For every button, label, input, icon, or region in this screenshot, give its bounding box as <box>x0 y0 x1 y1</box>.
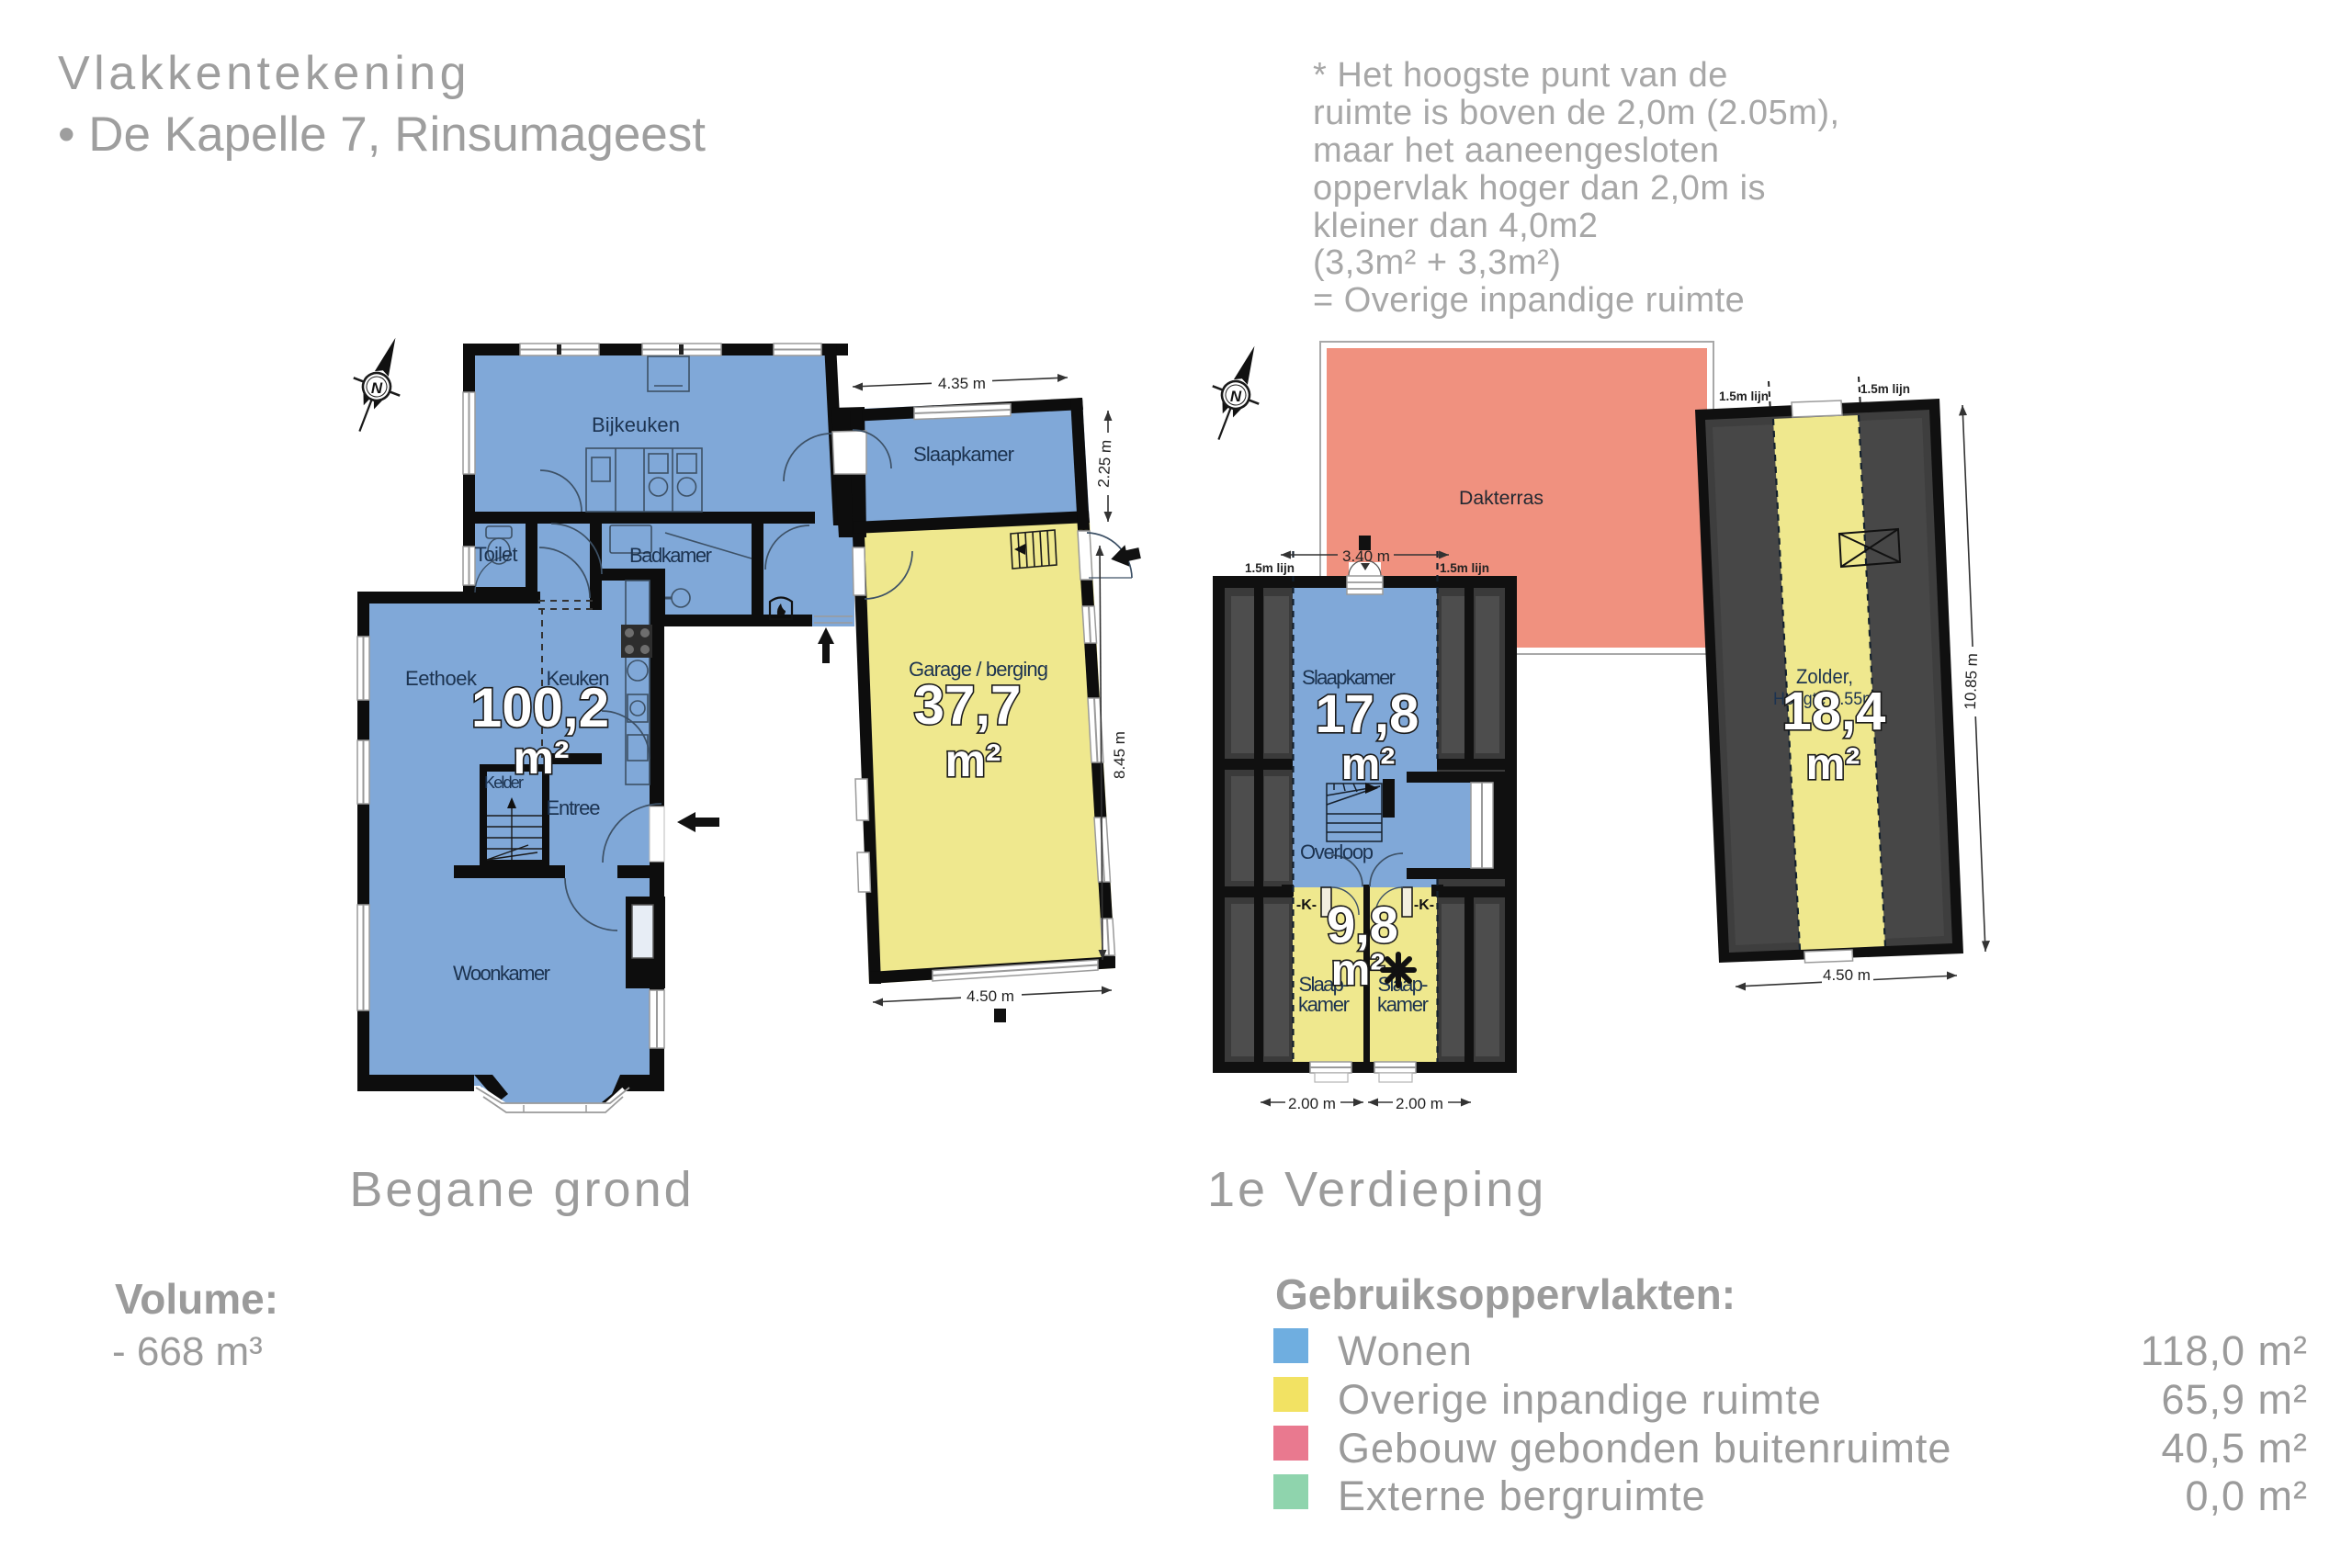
svg-text:Slaapkamer: Slaapkamer <box>913 443 1014 466</box>
svg-text:Overloop: Overloop <box>1300 840 1374 863</box>
svg-text:ruimte is boven de 2,0m (2.05m: ruimte is boven de 2,0m (2.05m), <box>1313 94 1840 132</box>
svg-text:Begane grond: Begane grond <box>349 1162 694 1217</box>
svg-text:9,8: 9,8 <box>1327 896 1398 953</box>
svg-text:Vlakkentekening: Vlakkentekening <box>58 47 470 100</box>
svg-text:-K-: -K- <box>1414 897 1434 913</box>
svg-text:Gebouw gebonden buitenruimte: Gebouw gebonden buitenruimte <box>1338 1425 1951 1472</box>
svg-text:40,5 m²: 40,5 m² <box>2161 1425 2308 1472</box>
svg-text:1.5m lijn: 1.5m lijn <box>1860 382 1910 396</box>
svg-text:Externe bergruimte: Externe bergruimte <box>1338 1472 1706 1519</box>
svg-text:65,9 m²: 65,9 m² <box>2161 1376 2308 1423</box>
svg-text:-K-: -K- <box>1296 897 1317 913</box>
svg-text:Overige inpandige ruimte: Overige inpandige ruimte <box>1338 1376 1822 1423</box>
svg-text:17,8: 17,8 <box>1316 684 1419 744</box>
svg-text:8.45 m: 8.45 m <box>1111 731 1128 779</box>
svg-text:100,2: 100,2 <box>471 677 609 739</box>
svg-text:oppervlak hoger dan 2,0m is: oppervlak hoger dan 2,0m is <box>1313 169 1766 208</box>
svg-text:m²: m² <box>1341 740 1396 789</box>
svg-text:Volume:: Volume: <box>115 1275 278 1323</box>
svg-text:Eethoek: Eethoek <box>405 667 478 690</box>
svg-text:maar het aaneengesloten: maar het aaneengesloten <box>1313 131 1720 170</box>
svg-text:Entree: Entree <box>547 796 601 819</box>
svg-text:37,7: 37,7 <box>914 674 1022 736</box>
svg-text:- 668 m³: - 668 m³ <box>112 1329 263 1374</box>
svg-text:kamer: kamer <box>1298 993 1350 1016</box>
svg-text:N: N <box>371 379 383 397</box>
svg-text:m²: m² <box>1331 946 1385 995</box>
svg-text:4.50 m: 4.50 m <box>967 987 1014 1005</box>
svg-text:2.00 m: 2.00 m <box>1396 1095 1443 1112</box>
svg-text:• De Kapelle 7, Rinsumageest: • De Kapelle 7, Rinsumageest <box>58 107 706 162</box>
svg-text:118,0 m²: 118,0 m² <box>2141 1327 2308 1374</box>
svg-text:2.00 m: 2.00 m <box>1288 1095 1336 1112</box>
svg-text:m²: m² <box>513 732 569 784</box>
svg-text:10.85 m: 10.85 m <box>1962 653 1981 710</box>
svg-text:1.5m lijn: 1.5m lijn <box>1719 389 1769 403</box>
svg-text:Badkamer: Badkamer <box>629 544 712 567</box>
svg-text:Toilet: Toilet <box>475 543 518 566</box>
svg-text:1.5m lijn: 1.5m lijn <box>1245 561 1295 575</box>
svg-text:1e Verdieping: 1e Verdieping <box>1207 1162 1546 1217</box>
svg-text:4.50 m: 4.50 m <box>1823 966 1871 984</box>
svg-text:(3,3m² + 3,3m²): (3,3m² + 3,3m²) <box>1313 243 1561 282</box>
svg-text:kleiner dan 4,0m2: kleiner dan 4,0m2 <box>1313 207 1599 245</box>
svg-text:= Overige inpandige ruimte: = Overige inpandige ruimte <box>1313 281 1745 320</box>
svg-text:4.35 m: 4.35 m <box>938 375 986 392</box>
svg-text:18,4: 18,4 <box>1782 682 1886 741</box>
svg-text:Bijkeuken: Bijkeuken <box>592 413 680 436</box>
svg-text:* Het hoogste punt van de: * Het hoogste punt van de <box>1313 56 1728 95</box>
svg-text:m²: m² <box>1806 740 1860 789</box>
svg-text:Woonkamer: Woonkamer <box>453 962 550 985</box>
svg-text:3.40 m: 3.40 m <box>1342 547 1390 565</box>
svg-text:2.25 m: 2.25 m <box>1095 439 1115 488</box>
svg-text:0,0 m²: 0,0 m² <box>2185 1472 2308 1519</box>
svg-text:m²: m² <box>944 735 1001 786</box>
svg-text:Dakterras: Dakterras <box>1459 488 1543 509</box>
svg-text:Gebruiksoppervlakten:: Gebruiksoppervlakten: <box>1275 1270 1736 1318</box>
svg-text:kamer: kamer <box>1377 993 1429 1016</box>
svg-text:Wonen: Wonen <box>1338 1327 1473 1374</box>
svg-text:N: N <box>1230 388 1242 405</box>
svg-text:1.5m lijn: 1.5m lijn <box>1440 561 1489 575</box>
